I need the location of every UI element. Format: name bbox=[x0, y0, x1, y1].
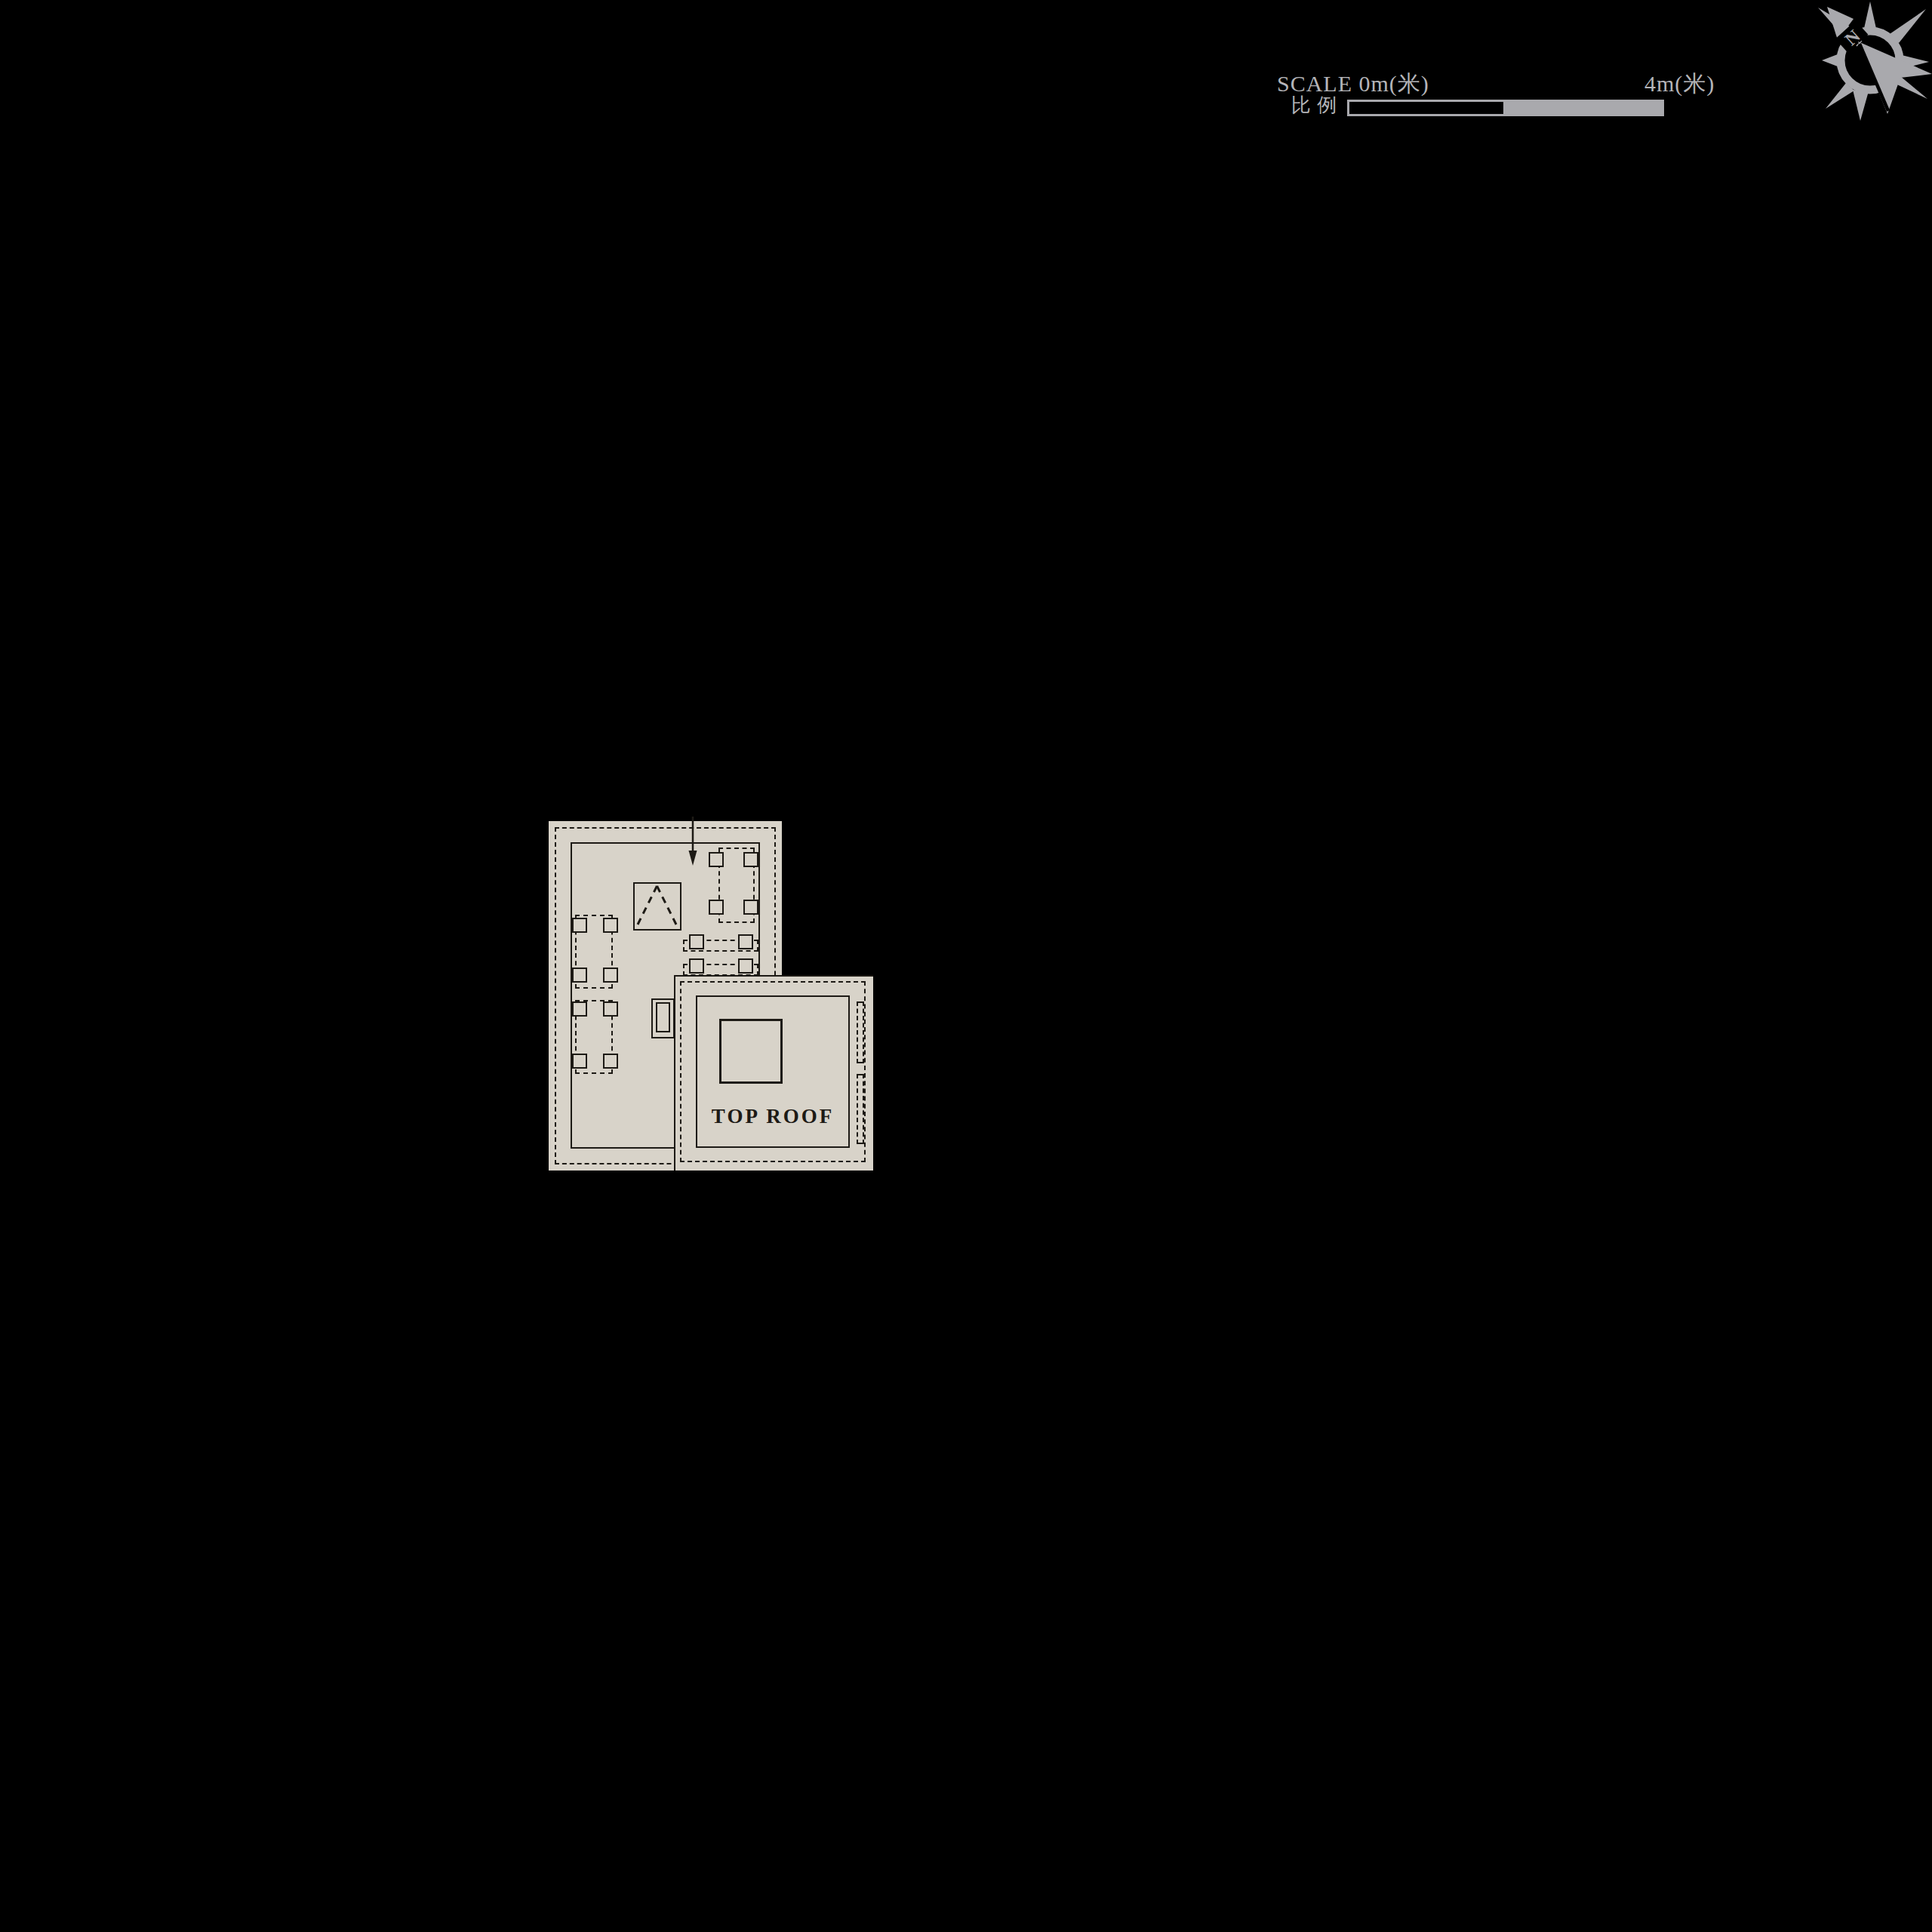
skylight-ridge-lines bbox=[635, 884, 679, 928]
chair bbox=[738, 934, 753, 949]
chair bbox=[689, 934, 704, 949]
chair bbox=[709, 900, 724, 915]
chair bbox=[603, 918, 618, 933]
roof-hatch-square bbox=[719, 1019, 783, 1084]
chimney-flue bbox=[656, 1002, 670, 1032]
scale-bar-segment-gray bbox=[1506, 100, 1664, 116]
chair bbox=[572, 1054, 587, 1069]
scale-bar-track bbox=[1347, 100, 1664, 116]
entry-arrow-icon bbox=[685, 817, 700, 868]
chair bbox=[572, 968, 587, 983]
chair bbox=[603, 968, 618, 983]
compass-spike-ne bbox=[1890, 9, 1926, 43]
compass-spike-w bbox=[1822, 53, 1841, 68]
skylight bbox=[633, 882, 681, 931]
entry-arrow-head bbox=[689, 851, 697, 866]
ridge-line-left bbox=[637, 886, 657, 926]
ridge-line-right bbox=[657, 886, 678, 926]
chair bbox=[709, 852, 724, 867]
chimney bbox=[651, 998, 675, 1038]
chair bbox=[603, 1054, 618, 1069]
chair bbox=[603, 1001, 618, 1017]
scale-label-left: SCALE 0m(米) bbox=[1277, 72, 1429, 95]
compass-spike-n bbox=[1863, 2, 1877, 32]
chair bbox=[572, 918, 587, 933]
roof-drain-dashed bbox=[857, 1074, 864, 1144]
compass-spike-s bbox=[1853, 90, 1869, 121]
chair bbox=[689, 958, 704, 974]
top-roof-label: TOP ROOF bbox=[696, 1105, 850, 1128]
roof-drain-dashed bbox=[857, 1001, 864, 1063]
drawing-canvas: SCALE 0m(米) 比例 4m(米) N bbox=[0, 0, 1932, 1932]
scale-label-cn: 比例 bbox=[1291, 96, 1343, 115]
chair bbox=[743, 900, 758, 915]
scale-label-right: 4m(米) bbox=[1644, 72, 1715, 95]
scale-bar-segment-dark bbox=[1347, 100, 1506, 116]
north-compass-icon: N bbox=[1805, 0, 1932, 127]
chair bbox=[743, 852, 758, 867]
compass-spike-sw bbox=[1826, 83, 1854, 109]
chair bbox=[572, 1001, 587, 1017]
building-b-top-roof: TOP ROOF bbox=[674, 975, 873, 1171]
chair bbox=[738, 958, 753, 974]
